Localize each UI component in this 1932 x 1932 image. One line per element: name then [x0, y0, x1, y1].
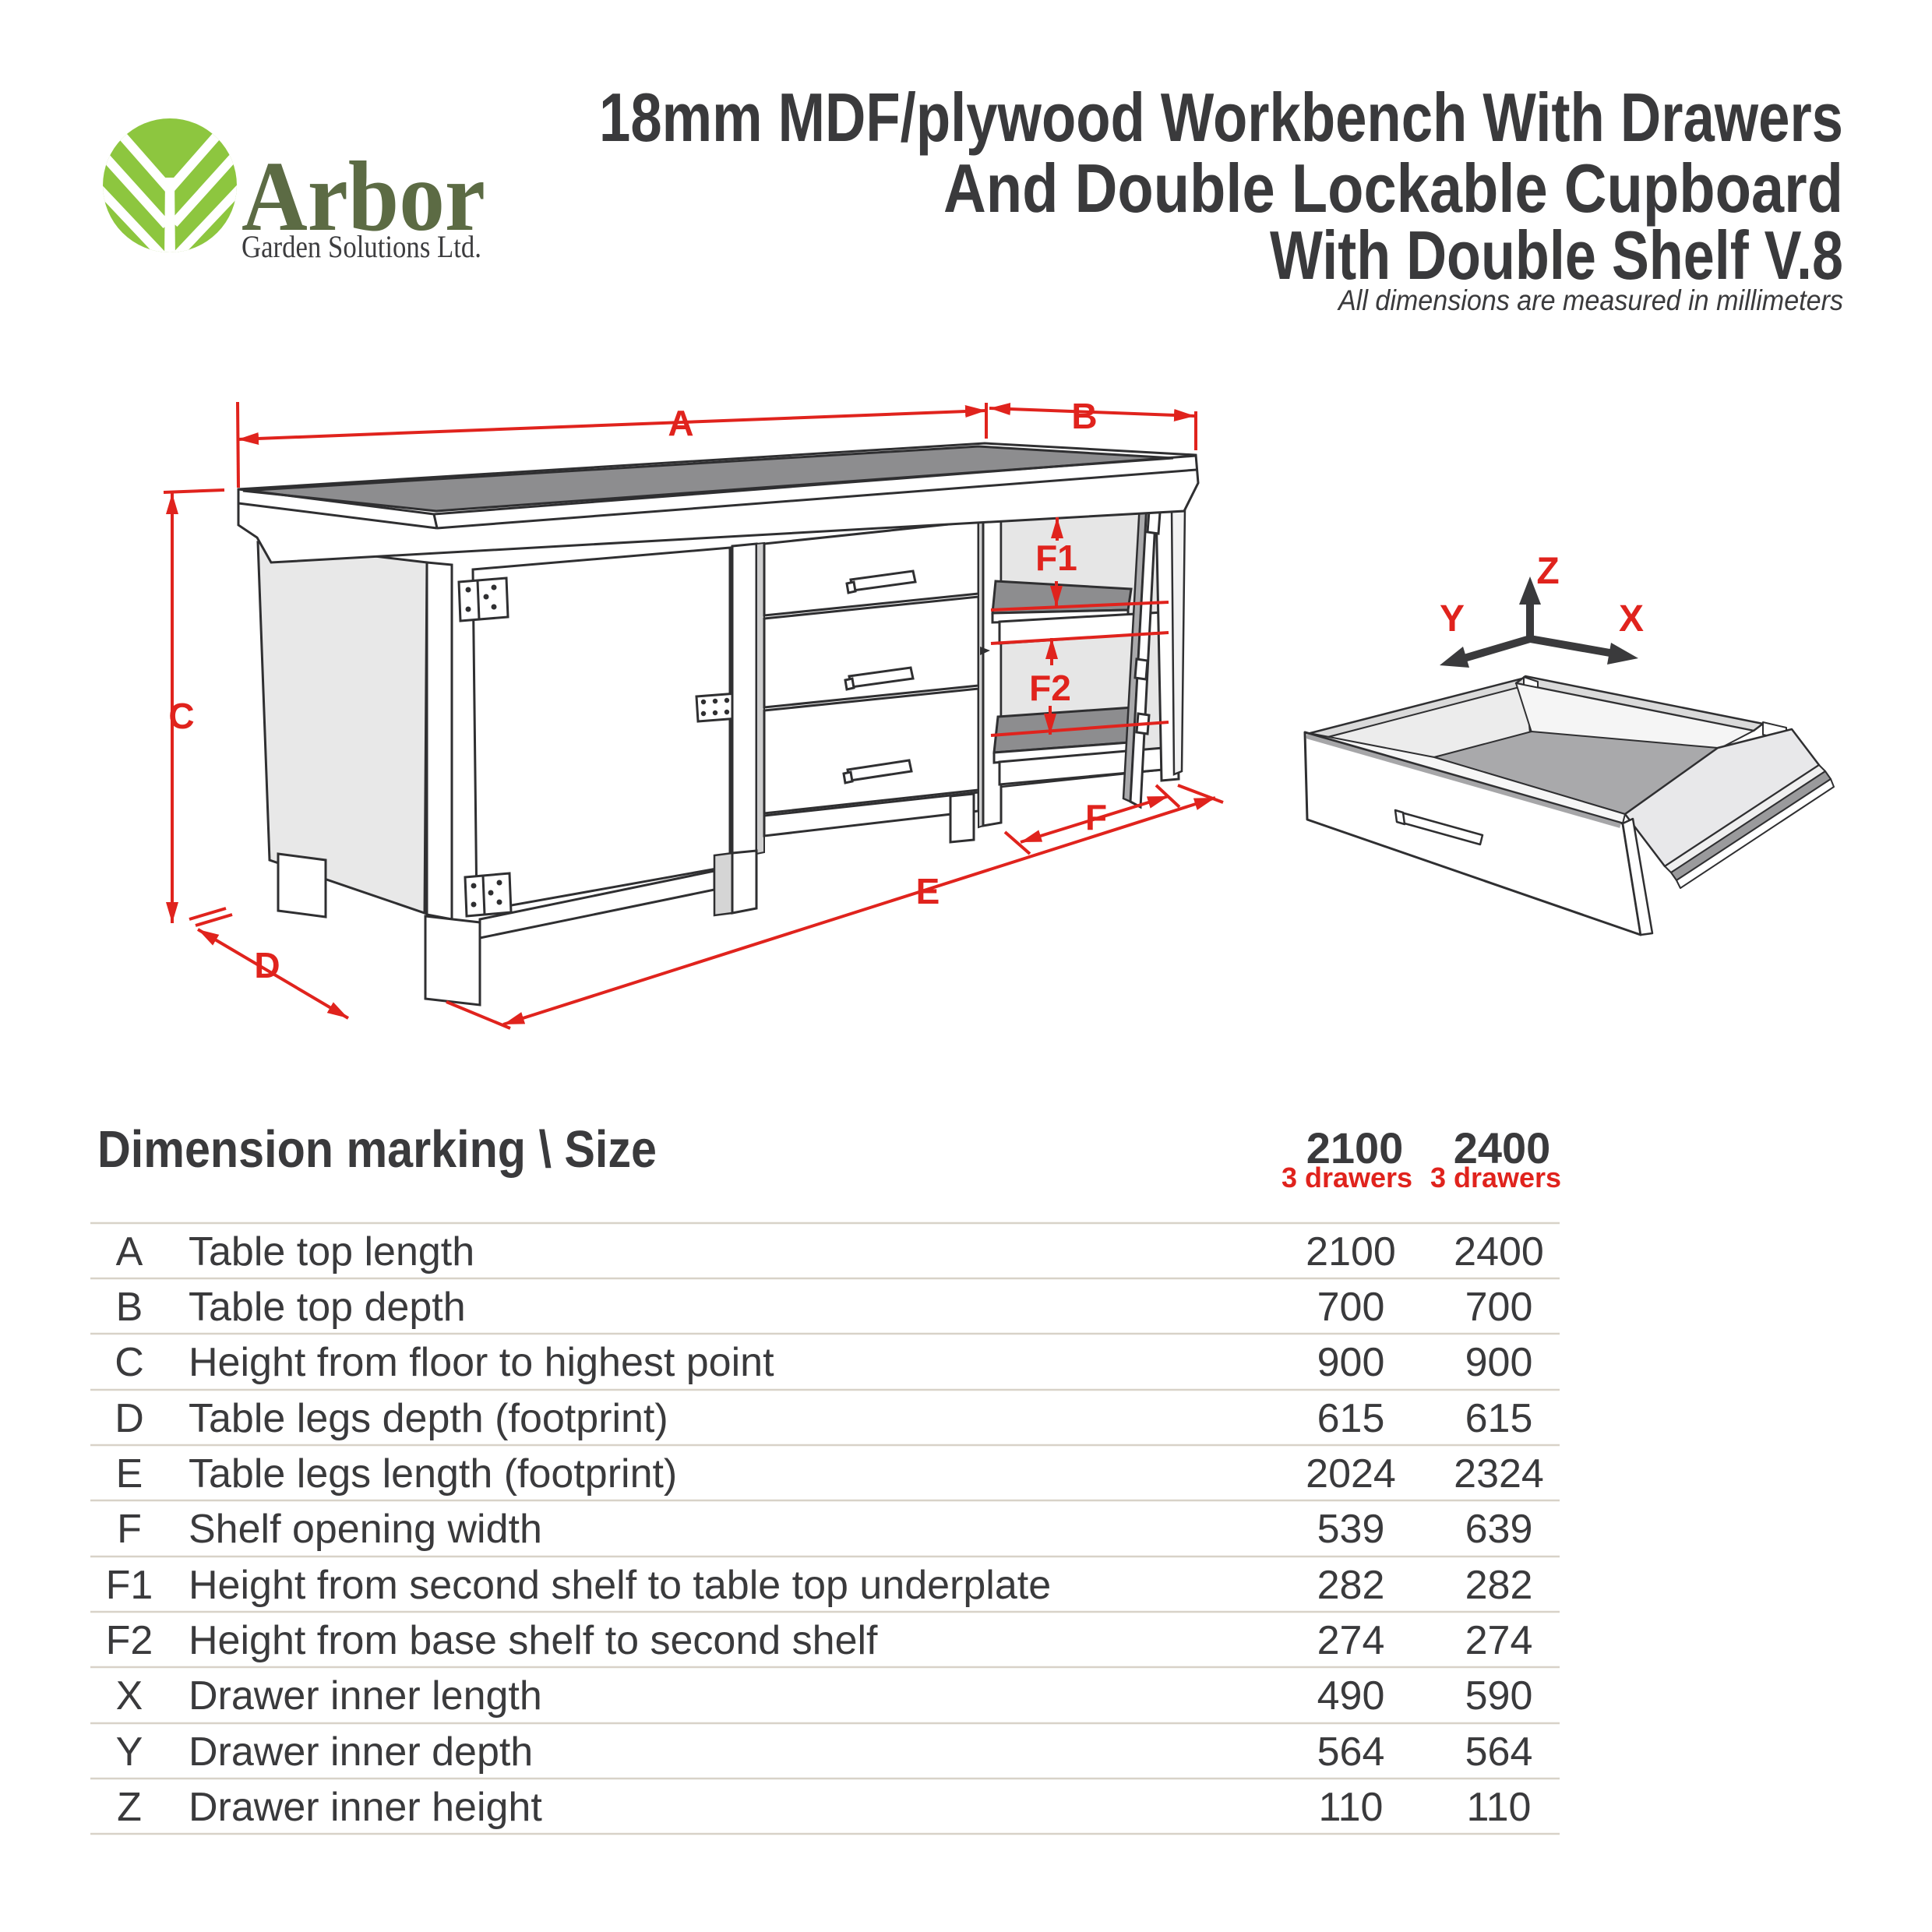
svg-text:F: F [117, 1507, 142, 1552]
svg-text:Table top length: Table top length [189, 1229, 474, 1274]
svg-text:Shelf opening width: Shelf opening width [189, 1507, 542, 1552]
svg-text:E: E [916, 871, 940, 911]
svg-text:With Double Shelf V.8: With Double Shelf V.8 [1270, 217, 1843, 294]
svg-text:274: 274 [1317, 1618, 1385, 1663]
svg-text:3 drawers: 3 drawers [1282, 1162, 1412, 1193]
svg-text:110: 110 [1467, 1785, 1532, 1830]
svg-text:All dimensions are measured in: All dimensions are measured in millimete… [1337, 284, 1843, 316]
svg-text:590: 590 [1465, 1673, 1533, 1719]
svg-text:Drawer inner depth: Drawer inner depth [189, 1729, 533, 1775]
svg-text:539: 539 [1317, 1507, 1385, 1552]
svg-text:Table legs length (footprint): Table legs length (footprint) [189, 1451, 677, 1497]
svg-text:F2: F2 [1029, 668, 1071, 708]
svg-text:274: 274 [1465, 1618, 1533, 1663]
svg-text:700: 700 [1317, 1285, 1385, 1330]
svg-text:Y: Y [116, 1729, 143, 1775]
svg-text:490: 490 [1317, 1673, 1385, 1719]
svg-text:F1: F1 [106, 1563, 153, 1608]
svg-text:639: 639 [1465, 1507, 1533, 1552]
svg-text:615: 615 [1317, 1396, 1385, 1441]
svg-text:700: 700 [1465, 1285, 1533, 1330]
svg-text:D: D [254, 945, 280, 985]
svg-text:282: 282 [1317, 1563, 1385, 1608]
svg-text:Height from second shelf to ta: Height from second shelf to table top un… [189, 1563, 1051, 1608]
svg-text:F1: F1 [1035, 538, 1077, 578]
svg-text:2024: 2024 [1306, 1451, 1396, 1497]
svg-text:2100: 2100 [1306, 1229, 1396, 1274]
svg-text:564: 564 [1317, 1729, 1385, 1775]
svg-text:Drawer inner height: Drawer inner height [189, 1785, 542, 1830]
svg-text:2400: 2400 [1454, 1229, 1544, 1274]
svg-text:And Double Lockable Cupboard: And Double Lockable Cupboard [943, 150, 1843, 227]
svg-text:615: 615 [1465, 1396, 1533, 1441]
svg-text:E: E [116, 1451, 143, 1497]
svg-text:C: C [115, 1340, 144, 1385]
svg-text:B: B [1071, 396, 1097, 436]
svg-text:Height from base shelf to seco: Height from base shelf to second shelf [189, 1618, 878, 1663]
svg-text:X: X [116, 1673, 143, 1719]
svg-text:282: 282 [1465, 1563, 1533, 1608]
svg-text:F2: F2 [106, 1618, 153, 1663]
svg-text:X: X [1619, 598, 1644, 640]
svg-text:Table top depth: Table top depth [189, 1285, 466, 1330]
svg-text:Z: Z [117, 1785, 142, 1830]
svg-text:Garden Solutions Ltd.: Garden Solutions Ltd. [241, 229, 481, 264]
svg-text:D: D [115, 1396, 144, 1441]
svg-text:C: C [168, 696, 194, 736]
svg-text:Dimension marking \ Size: Dimension marking \ Size [97, 1120, 657, 1179]
svg-text:18mm MDF/plywood Workbench Wit: 18mm MDF/plywood Workbench With Drawers [599, 79, 1843, 156]
svg-text:Y: Y [1440, 598, 1465, 640]
svg-text:564: 564 [1465, 1729, 1533, 1775]
svg-text:110: 110 [1319, 1785, 1384, 1830]
svg-text:A: A [668, 403, 693, 443]
svg-text:Table legs depth (footprint): Table legs depth (footprint) [189, 1396, 668, 1441]
svg-text:900: 900 [1317, 1340, 1385, 1385]
svg-text:F: F [1085, 797, 1107, 837]
svg-text:3 drawers: 3 drawers [1430, 1162, 1561, 1193]
svg-text:Drawer inner length: Drawer inner length [189, 1673, 542, 1719]
svg-text:B: B [116, 1285, 143, 1330]
svg-text:Z: Z [1536, 551, 1559, 592]
svg-text:900: 900 [1465, 1340, 1533, 1385]
svg-text:A: A [116, 1229, 143, 1274]
svg-text:2324: 2324 [1454, 1451, 1544, 1497]
svg-text:Height from floor to highest p: Height from floor to highest point [189, 1340, 774, 1385]
